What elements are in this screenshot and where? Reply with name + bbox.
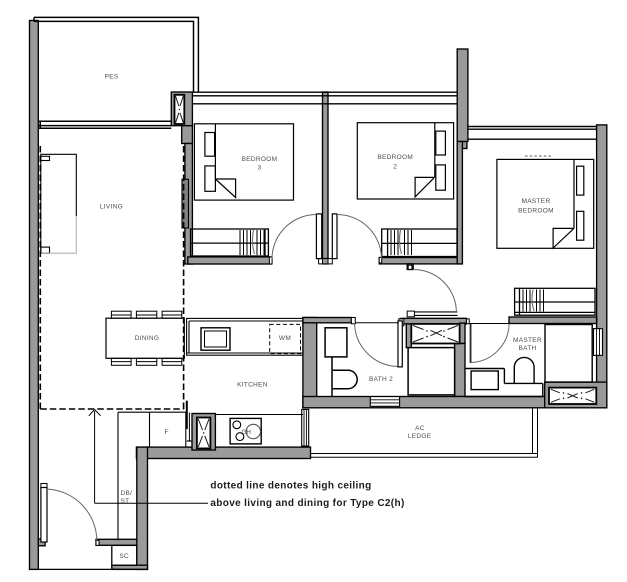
svg-text:WM: WM [279, 335, 291, 342]
svg-text:above living and dining for Ty: above living and dining for Type C2(h) [210, 498, 404, 509]
svg-text:MASTER: MASTER [522, 198, 551, 205]
svg-text:BATH: BATH [518, 345, 536, 352]
svg-text:LEDGE: LEDGE [408, 433, 432, 440]
svg-text:BEDROOM: BEDROOM [377, 154, 413, 161]
svg-text:PES: PES [105, 74, 119, 81]
svg-text:2: 2 [393, 164, 397, 171]
svg-text:BEDROOM: BEDROOM [518, 207, 554, 214]
svg-text:3: 3 [258, 165, 262, 172]
svg-text:DB/: DB/ [121, 490, 133, 497]
svg-text:LIVING: LIVING [100, 204, 123, 211]
svg-text:F: F [165, 429, 169, 436]
svg-text:BATH 2: BATH 2 [369, 376, 393, 383]
svg-text:ST: ST [121, 498, 130, 505]
svg-text:MASTER: MASTER [513, 337, 542, 344]
svg-text:SC: SC [119, 553, 129, 560]
svg-text:GH: GH [242, 429, 251, 436]
svg-text:dotted line denotes high ceili: dotted line denotes high ceiling [210, 480, 371, 491]
svg-text:AC: AC [415, 425, 425, 432]
svg-text:BEDROOM: BEDROOM [242, 156, 278, 163]
svg-text:DINING: DINING [135, 335, 160, 342]
svg-text:KITCHEN: KITCHEN [237, 382, 268, 389]
